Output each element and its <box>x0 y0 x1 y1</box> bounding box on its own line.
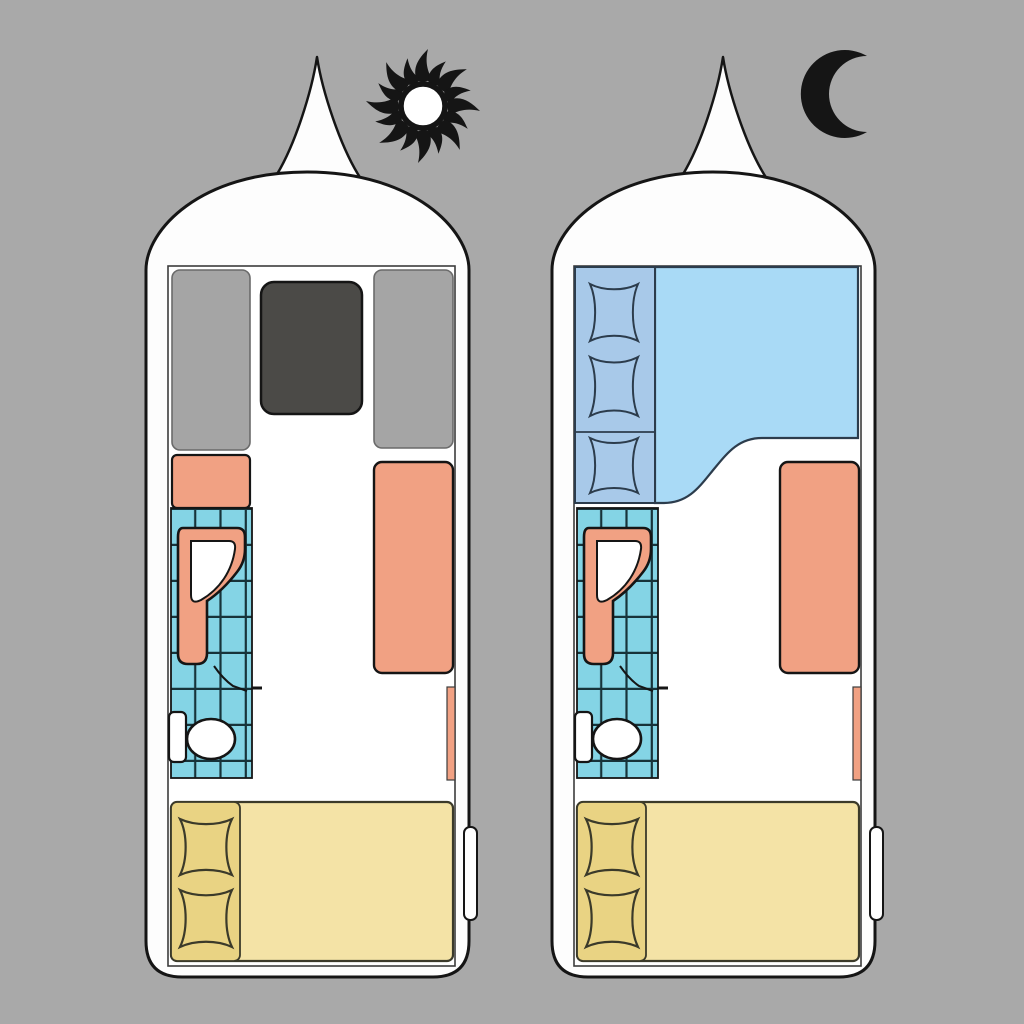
toilet-bowl <box>593 719 641 759</box>
side-sofa <box>374 462 453 673</box>
day-caravan-panel <box>146 57 477 977</box>
pillow <box>590 284 638 341</box>
pillow <box>180 890 232 947</box>
toilet-bowl <box>187 719 235 759</box>
kitchen-counter <box>172 455 250 508</box>
pillow <box>180 819 232 875</box>
pillow <box>586 890 638 947</box>
hitch-cone <box>680 57 767 179</box>
entry-door-handle <box>464 827 477 920</box>
pillow <box>586 819 638 875</box>
wall-shelf <box>853 687 861 780</box>
moon-icon <box>801 50 867 138</box>
hitch-cone <box>274 57 361 179</box>
pillow <box>590 438 638 493</box>
dinette-table <box>261 282 362 414</box>
toilet-cistern <box>169 712 186 762</box>
dinette-bench-left <box>172 270 250 450</box>
entry-door-handle <box>870 827 883 920</box>
side-sofa <box>780 462 859 673</box>
pillow <box>590 357 638 416</box>
sun-icon <box>366 49 480 163</box>
diagram-canvas <box>0 0 1024 1024</box>
toilet-cistern <box>575 712 592 762</box>
sun-core <box>401 84 445 128</box>
night-caravan-panel <box>552 57 883 977</box>
wall-shelf <box>447 687 455 780</box>
dinette-bench-right <box>374 270 453 448</box>
